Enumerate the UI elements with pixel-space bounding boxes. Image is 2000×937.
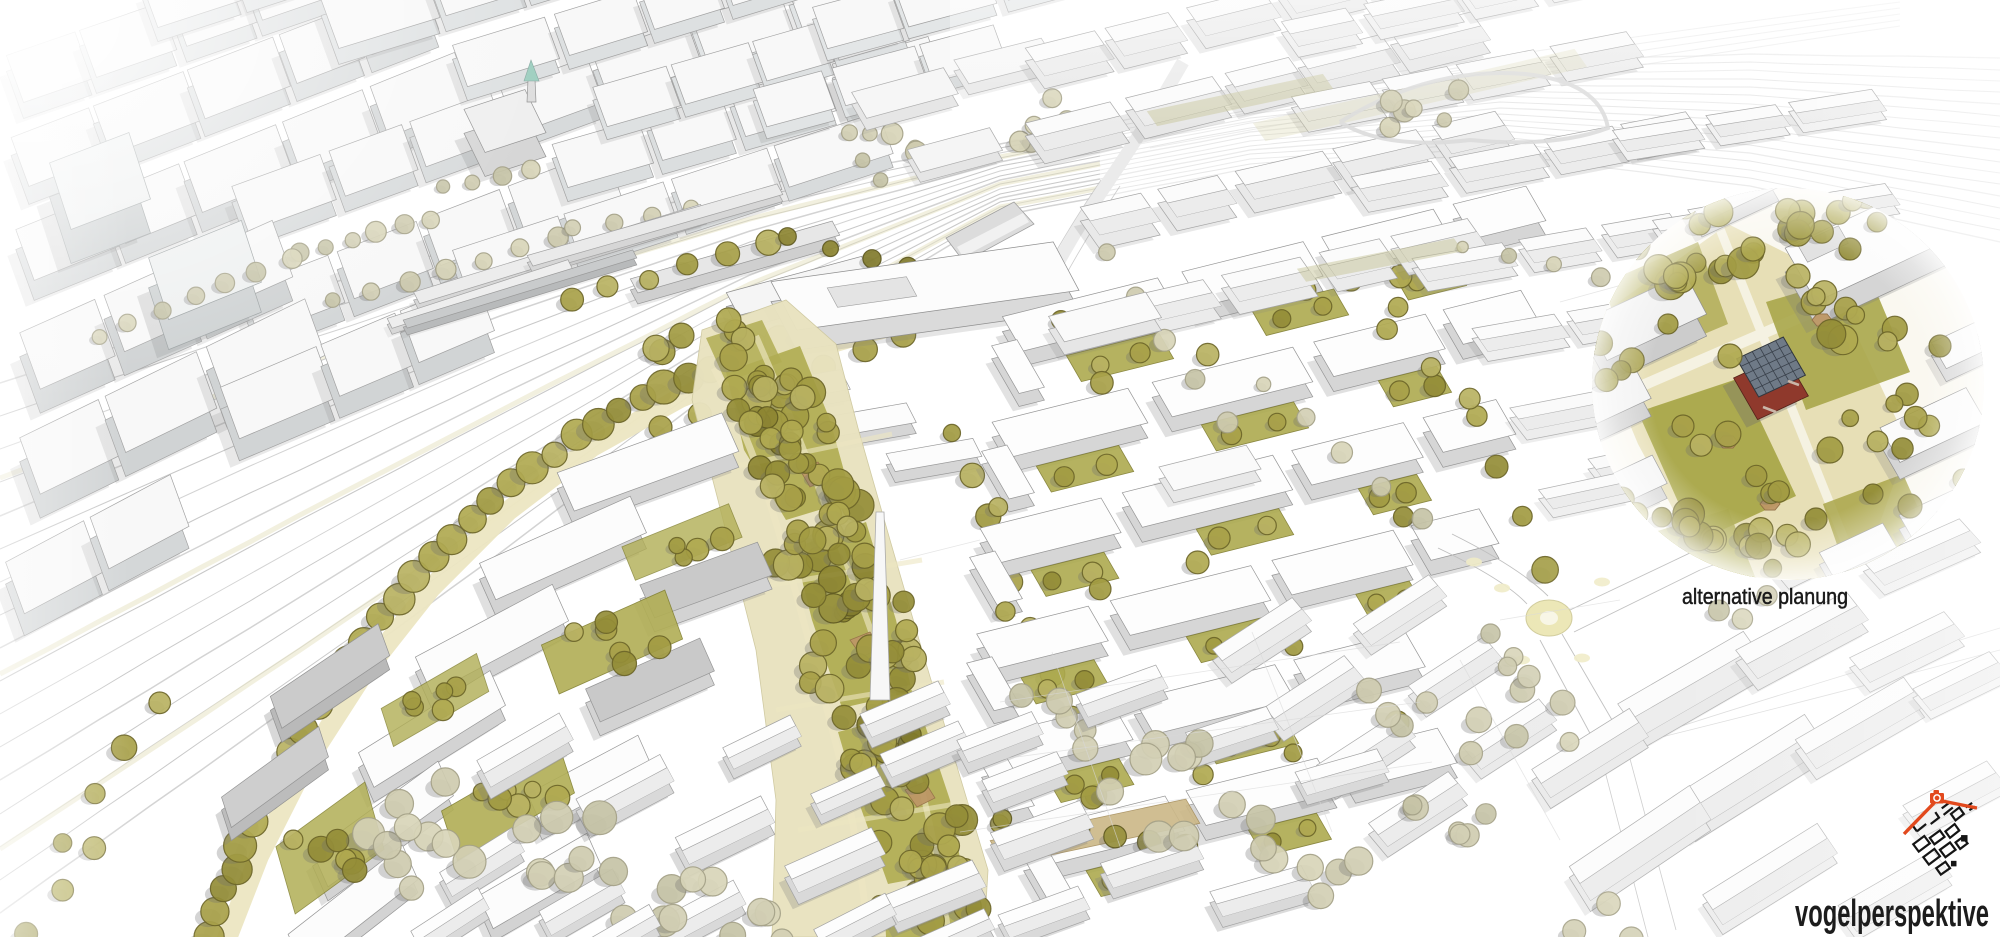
svg-text:alternative planung: alternative planung (1682, 584, 1848, 609)
svg-text:vogelperspektive: vogelperspektive (1795, 893, 1989, 935)
